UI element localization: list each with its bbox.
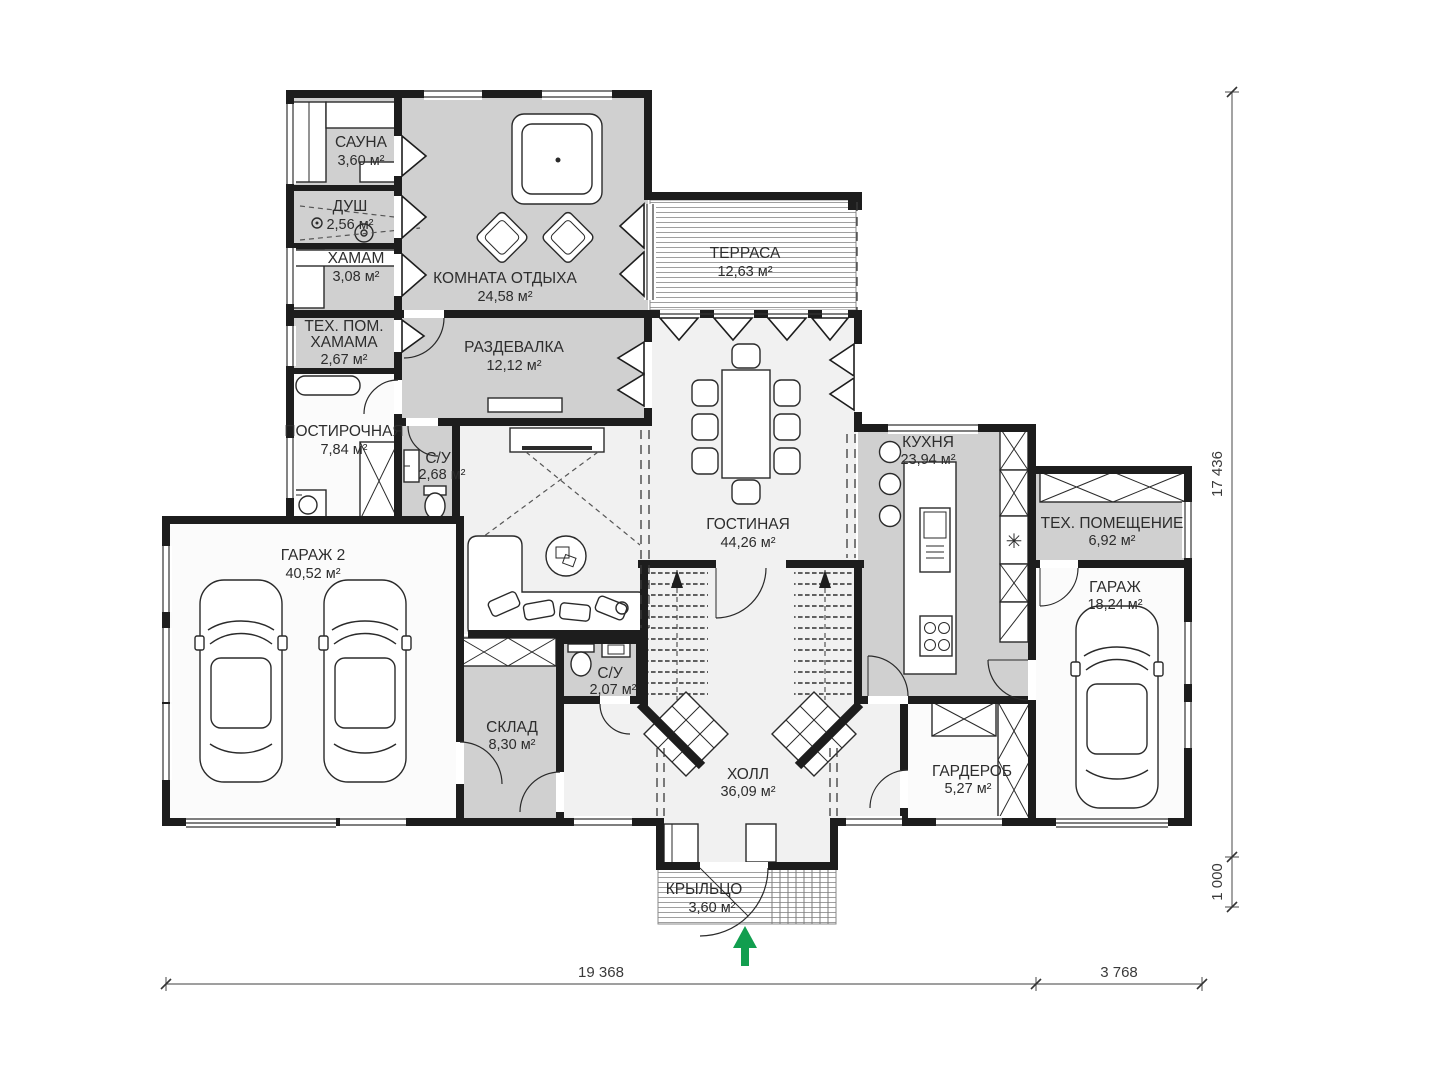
svg-text:СКЛАД: СКЛАД: [486, 719, 538, 736]
window: [160, 546, 172, 612]
window: [1182, 502, 1194, 558]
svg-text:ТЕРРАСА: ТЕРРАСА: [710, 245, 781, 262]
svg-text:3,08 м²: 3,08 м²: [332, 269, 379, 285]
tv-console-icon: [510, 428, 604, 452]
garage-gate-icon: [1056, 816, 1168, 828]
window: [284, 326, 296, 366]
dimension-right-main: 17 436: [1209, 451, 1226, 497]
svg-text:3,60 м²: 3,60 м²: [688, 900, 735, 916]
svg-text:2,07 м²: 2,07 м²: [589, 682, 636, 698]
svg-text:ГАРДЕРОБ: ГАРДЕРОБ: [932, 763, 1012, 780]
svg-text:18,24 м²: 18,24 м²: [1087, 597, 1142, 613]
window: [846, 816, 902, 828]
window: [888, 422, 978, 434]
svg-text:КРЫЛЬЦО: КРЫЛЬЦО: [666, 881, 743, 898]
tech-room-cabinet-icon: [1040, 472, 1186, 502]
window: [284, 104, 296, 184]
entry-cabinet-icon: [664, 824, 698, 864]
fridge-icon: ✳: [1006, 531, 1023, 553]
jacuzzi-icon: [512, 114, 602, 204]
storage-cabinet-icon: [460, 638, 556, 666]
svg-text:ТЕХ. ПОМ.: ТЕХ. ПОМ.: [304, 318, 383, 335]
svg-text:36,09 м²: 36,09 м²: [720, 784, 775, 800]
svg-text:2,68 м²: 2,68 м²: [418, 467, 465, 483]
car-icon: [195, 580, 287, 782]
sink-icon: [602, 642, 630, 657]
svg-text:2,56 м²: 2,56 м²: [326, 217, 373, 233]
svg-text:12,12 м²: 12,12 м²: [486, 358, 541, 374]
window: [340, 816, 406, 828]
window: [424, 88, 482, 100]
window: [574, 816, 632, 828]
dimension-right-small: 1 000: [1209, 863, 1226, 901]
entry-bench-icon: [746, 824, 776, 862]
svg-text:ТЕХ. ПОМЕЩЕНИЕ: ТЕХ. ПОМЕЩЕНИЕ: [1041, 515, 1184, 532]
svg-text:12,63 м²: 12,63 м²: [717, 264, 772, 280]
floor-plan-canvas: ✳: [0, 0, 1436, 1080]
svg-text:ХОЛЛ: ХОЛЛ: [727, 766, 769, 783]
svg-text:КОМНАТА ОТДЫХА: КОМНАТА ОТДЫХА: [433, 270, 577, 287]
svg-text:САУНА: САУНА: [335, 134, 388, 151]
svg-text:ХАМАМА: ХАМАМА: [310, 334, 378, 351]
svg-text:8,30 м²: 8,30 м²: [488, 737, 535, 753]
svg-text:2,67 м²: 2,67 м²: [320, 352, 367, 368]
svg-text:24,58 м²: 24,58 м²: [477, 289, 532, 305]
dimension-bottom-right: 3 768: [1100, 964, 1138, 981]
svg-text:ХАМАМ: ХАМАМ: [328, 250, 385, 267]
window: [284, 438, 296, 498]
svg-text:44,26 м²: 44,26 м²: [720, 535, 775, 551]
floor-plan-page: ✳: [0, 0, 1436, 1080]
sink-icon: [404, 450, 419, 482]
svg-text:6,92 м²: 6,92 м²: [1088, 533, 1135, 549]
svg-text:40,52 м²: 40,52 м²: [285, 566, 340, 582]
car-icon: [1071, 606, 1163, 808]
svg-text:ДУШ: ДУШ: [333, 198, 368, 215]
svg-text:23,94 м²: 23,94 м²: [900, 452, 955, 468]
kitchen-cabinets-icon: ✳: [1000, 428, 1028, 642]
svg-text:5,27 м²: 5,27 м²: [944, 781, 991, 797]
svg-text:ГАРАЖ: ГАРАЖ: [1089, 579, 1141, 596]
svg-text:7,84 м²: 7,84 м²: [320, 442, 367, 458]
window: [160, 704, 172, 780]
toilet-icon: [424, 486, 446, 519]
svg-text:С/У: С/У: [425, 450, 451, 467]
dimension-bottom-left: 19 368: [578, 964, 624, 981]
coffee-table-icon: [546, 536, 586, 576]
window: [644, 204, 656, 300]
svg-text:ПОСТИРОЧНАЯ: ПОСТИРОЧНАЯ: [284, 423, 403, 440]
window: [1182, 622, 1194, 684]
window: [542, 88, 612, 100]
svg-text:РАЗДЕВАЛКА: РАЗДЕВАЛКА: [464, 339, 564, 356]
svg-text:С/У: С/У: [597, 665, 623, 682]
svg-text:ГАРАЖ 2: ГАРАЖ 2: [281, 547, 346, 564]
car-icon: [319, 580, 411, 782]
garage-gate-icon: [186, 816, 336, 828]
svg-text:КУХНЯ: КУХНЯ: [902, 434, 954, 451]
svg-text:3,60 м²: 3,60 м²: [337, 153, 384, 169]
boiler-icon: [296, 376, 360, 395]
window: [284, 248, 296, 304]
entrance-arrow-icon: [733, 926, 757, 966]
svg-text:ГОСТИНАЯ: ГОСТИНАЯ: [706, 516, 790, 533]
window: [1182, 702, 1194, 748]
window: [936, 816, 1002, 828]
bench-icon: [488, 398, 562, 412]
window: [160, 628, 172, 702]
